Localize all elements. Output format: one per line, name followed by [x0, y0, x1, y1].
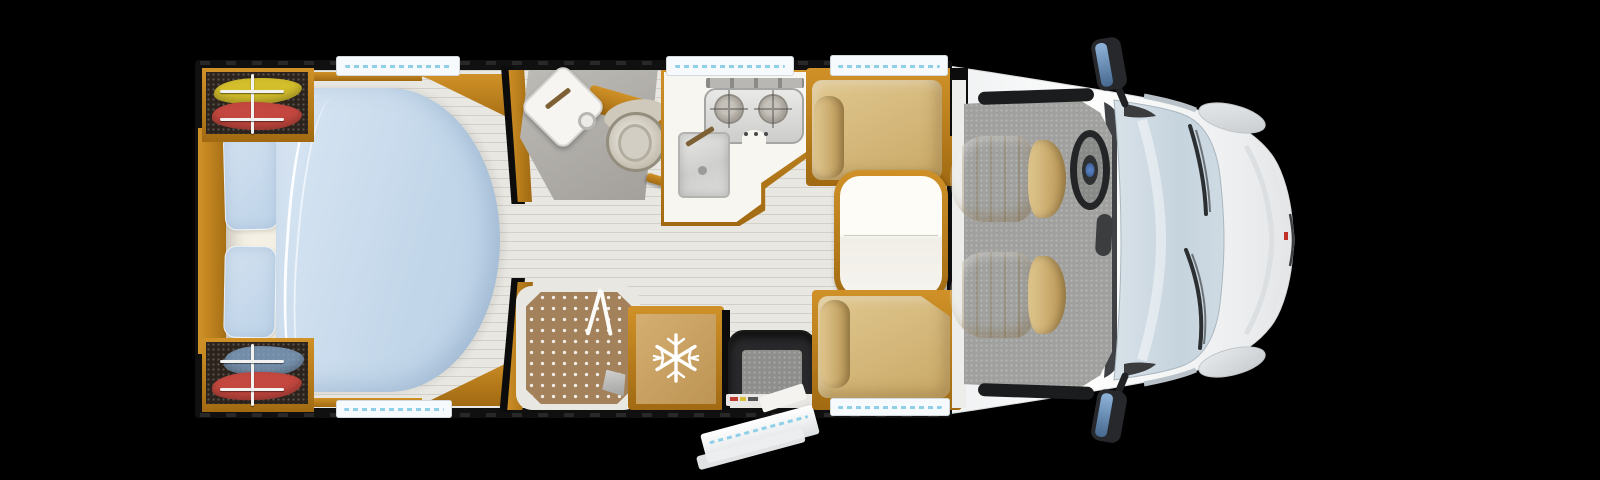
dinette-table-seam	[844, 235, 938, 236]
entry-sill-marking-dark	[748, 397, 758, 401]
hanger-bar	[220, 388, 284, 391]
dinette-bench-rear-backrest	[820, 300, 850, 388]
window-bedroom-top	[336, 56, 460, 76]
steering-wheel-icon	[1070, 130, 1110, 210]
hanger-bar	[220, 118, 284, 121]
cab-seat-driver-cushion	[950, 136, 1036, 222]
stove-burner-right	[760, 96, 786, 122]
cab-seat-passenger-backrest	[1028, 256, 1066, 334]
stove-knob	[744, 132, 748, 136]
windshield	[1114, 100, 1224, 380]
dinette-table-top	[840, 176, 942, 296]
window-dinette-bottom	[830, 398, 950, 416]
pillow-top	[223, 131, 280, 230]
kitchen-sink-drain	[698, 166, 707, 175]
cab-seat-passenger	[950, 252, 1066, 338]
window-dinette-top	[830, 55, 948, 76]
stove-back-rail	[706, 78, 804, 88]
pillow-bottom	[223, 246, 277, 339]
hanger-bar	[220, 360, 284, 363]
dinette-bench-front-backrest	[814, 96, 844, 178]
entry-sill-marking-red	[730, 397, 738, 401]
window-bedroom-bottom	[336, 400, 452, 418]
steering-hub	[1082, 155, 1098, 185]
window-kitchen	[666, 56, 794, 76]
cab-console	[1095, 214, 1113, 257]
stove-burner-left	[716, 96, 742, 122]
front-badge	[1284, 232, 1288, 240]
cab-seat-passenger-cushion	[950, 252, 1036, 338]
hanger-bar	[220, 90, 284, 93]
hanger-rail-top	[251, 74, 254, 134]
hanger-rail-bottom	[251, 344, 254, 406]
stove-knob	[754, 132, 758, 136]
motorhome-floorplan	[0, 0, 1600, 480]
cab-seat-driver	[950, 136, 1066, 222]
toilet-seat	[618, 124, 652, 162]
cab-threshold-strip	[952, 80, 966, 408]
steering-badge	[1086, 163, 1095, 177]
stove-knob	[764, 132, 768, 136]
snowflake-icon	[648, 330, 704, 386]
washbasin-drain	[578, 112, 596, 130]
entry-sill-marking-yellow	[740, 397, 746, 401]
cab-seat-driver-backrest	[1028, 140, 1066, 218]
